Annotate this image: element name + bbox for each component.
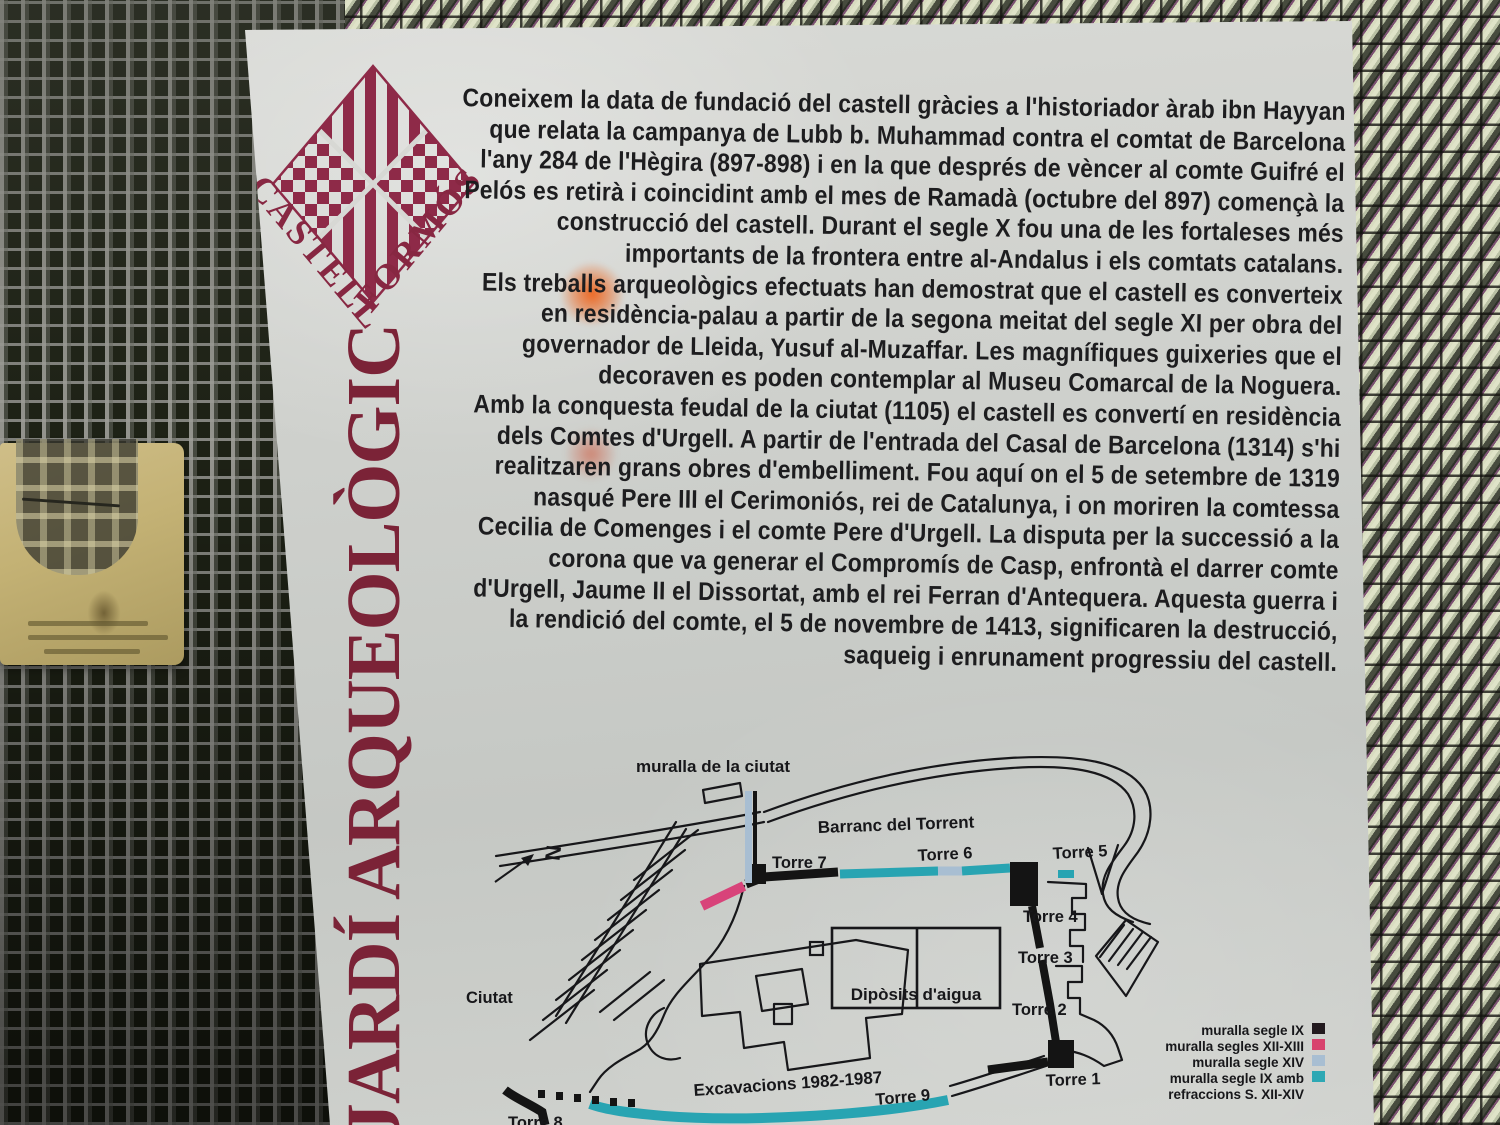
label-excavations: Excavacions 1982-1987: [693, 1068, 883, 1100]
body-text-block: Coneixem la data de fundació del castell…: [451, 83, 1346, 678]
fence-tag-window: [16, 439, 138, 575]
label-ravine: Barranc del Torrent: [817, 813, 974, 837]
wall-9th-refactions: [840, 871, 938, 874]
site-map: N muralla de la ciutat Barranc del Torre…: [440, 740, 1360, 1125]
label-torre-5: Torre 5: [1052, 842, 1108, 863]
legend-label-9th: muralla segle IX: [1201, 1023, 1304, 1038]
legend-swatch-14th: [1312, 1055, 1325, 1066]
fence-tag-textline: [28, 635, 168, 640]
paragraph-feudal: Amb la conquesta feudal de la ciutat (11…: [451, 389, 1341, 678]
label-torre-7: Torre 7: [772, 854, 827, 872]
legend-label-9th-amb: muralla segle IX amb: [1170, 1071, 1304, 1086]
label-torre-6: Torre 6: [917, 844, 973, 865]
legend-swatch-12-13th: [1312, 1039, 1325, 1050]
city-wall-bar: [745, 791, 757, 883]
label-city: Ciutat: [466, 989, 513, 1007]
north-label: N: [540, 844, 565, 862]
wall-12-13th: [702, 886, 744, 906]
label-torre-8: Torre 8: [508, 1114, 563, 1125]
legend-label-refactions: refraccions S. XII-XIV: [1168, 1087, 1304, 1102]
legend-label-14th: muralla segle XIV: [1192, 1055, 1304, 1070]
north-arrow-icon: N: [495, 844, 565, 882]
paragraph-palace: Els treballs arqueològics efectuats han …: [456, 267, 1343, 403]
fence-tag: [0, 443, 184, 665]
legend-swatch-9th-amb: [1312, 1071, 1325, 1082]
legend-swatch-9th: [1312, 1023, 1325, 1034]
label-torre-2: Torre 2: [1012, 1001, 1067, 1019]
vertical-page-title: JARDÍ ARQUEOLÒGIC: [331, 324, 418, 1125]
label-water-tanks: Dipòsits d'aigua: [851, 985, 982, 1004]
label-city-wall: muralla de la ciutat: [636, 757, 790, 776]
label-torre-1: Torre 1: [1046, 1070, 1101, 1090]
photo-scene: CASTELL FORMÓS JARDÍ ARQUEOLÒGIC Coneixe…: [0, 0, 1500, 1125]
map-legend: muralla segle IX muralla segles XII-XIII…: [1165, 1023, 1325, 1102]
label-torre-4: Torre 4: [1023, 908, 1079, 926]
fence-tag-textline: [28, 621, 148, 626]
label-torre-3: Torre 3: [1018, 949, 1073, 967]
fence-tag-textline: [44, 649, 140, 654]
legend-label-12-13th: muralla segles XII-XIII: [1165, 1039, 1304, 1054]
fence-tag-emblem: [82, 583, 126, 643]
paragraph-founding: Coneixem la data de fundació del castell…: [458, 83, 1346, 280]
wall-9th-refactions: [962, 868, 1010, 871]
